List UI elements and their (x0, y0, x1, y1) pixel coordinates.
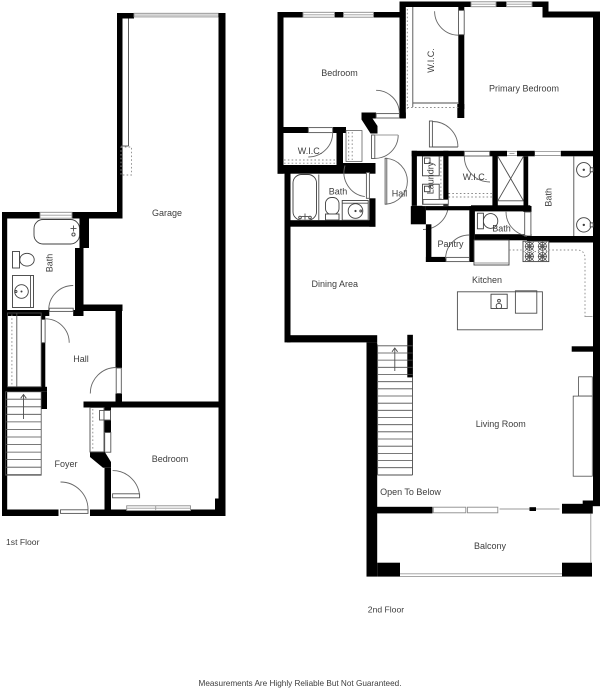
svg-text:Garage: Garage (152, 208, 182, 218)
svg-text:Foyer: Foyer (54, 459, 77, 469)
svg-text:Bedroom: Bedroom (321, 68, 358, 78)
svg-text:Laundry: Laundry (426, 161, 436, 194)
svg-text:Bath: Bath (492, 224, 511, 234)
svg-text:Measurements Are Highly Reliab: Measurements Are Highly Reliable But Not… (199, 679, 402, 688)
svg-text:Living Room: Living Room (476, 419, 526, 429)
svg-text:Bath: Bath (45, 254, 55, 273)
svg-text:Hall: Hall (392, 188, 408, 198)
svg-text:Open To Below: Open To Below (380, 487, 441, 497)
svg-text:W.I.C.: W.I.C. (298, 146, 323, 156)
svg-text:1st Floor: 1st Floor (6, 537, 40, 547)
svg-text:Pantry: Pantry (437, 239, 464, 249)
svg-text:W.I.C.: W.I.C. (463, 172, 488, 182)
svg-text:Kitchen: Kitchen (472, 275, 502, 285)
svg-text:Dining Area: Dining Area (312, 279, 359, 289)
svg-text:Bath: Bath (544, 188, 554, 207)
svg-text:Bath: Bath (329, 187, 348, 197)
svg-text:Primary Bedroom: Primary Bedroom (489, 83, 559, 93)
svg-text:Balcony: Balcony (474, 541, 507, 551)
svg-text:Hall: Hall (73, 354, 89, 364)
svg-text:Bedroom: Bedroom (152, 454, 189, 464)
svg-text:2nd Floor: 2nd Floor (368, 605, 404, 615)
svg-text:W.I.C.: W.I.C. (426, 48, 436, 73)
